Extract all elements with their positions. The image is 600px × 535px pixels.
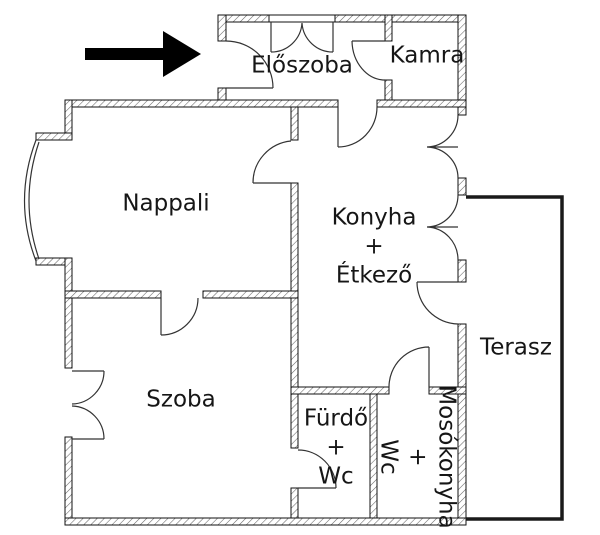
arrow-right-icon bbox=[85, 31, 201, 77]
room-label-furdo-wc: Fürdő + Wc bbox=[304, 405, 368, 492]
entry-hall-window bbox=[271, 22, 333, 52]
livingroom-door bbox=[253, 141, 291, 183]
room-label-furdo-line3: Wc bbox=[304, 463, 368, 492]
room-label-konyha-etkezo: Konyha + Étkező bbox=[332, 204, 417, 291]
room-label-szoba: Szoba bbox=[146, 386, 215, 415]
bedroom-window bbox=[72, 371, 104, 439]
room-label-nappali: Nappali bbox=[122, 190, 209, 219]
room-label-konyha-line2: + bbox=[332, 233, 417, 262]
room-label-konyha-line3: Étkező bbox=[332, 262, 417, 291]
kitchen-entry-door bbox=[338, 107, 377, 147]
kamra-door bbox=[352, 41, 385, 80]
laundry-door bbox=[389, 347, 429, 387]
kitchen-window-1 bbox=[427, 115, 458, 178]
room-label-mosokonyha-line2: + bbox=[403, 385, 432, 528]
room-label-mosokonyha-wc: Mosókonyha + Wc bbox=[374, 385, 461, 528]
floorplan: Előszoba Kamra Nappali Konyha + Étkező S… bbox=[0, 0, 600, 535]
room-label-konyha-line1: Konyha bbox=[332, 204, 417, 233]
room-label-terasz: Terasz bbox=[480, 334, 552, 363]
room-label-mosokonyha-line3: Wc bbox=[374, 385, 403, 528]
room-label-kamra: Kamra bbox=[390, 42, 465, 71]
terrace-door bbox=[417, 282, 458, 324]
bedroom-door bbox=[161, 298, 198, 335]
bay-window bbox=[25, 140, 40, 261]
entry-window-gap bbox=[269, 15, 335, 22]
kitchen-window-2 bbox=[427, 195, 458, 260]
room-label-furdo-line2: + bbox=[304, 434, 368, 463]
room-label-mosokonyha-line1: Mosókonyha bbox=[432, 385, 461, 528]
room-label-eloszoba: Előszoba bbox=[251, 52, 353, 81]
room-label-furdo-line1: Fürdő bbox=[304, 405, 368, 434]
